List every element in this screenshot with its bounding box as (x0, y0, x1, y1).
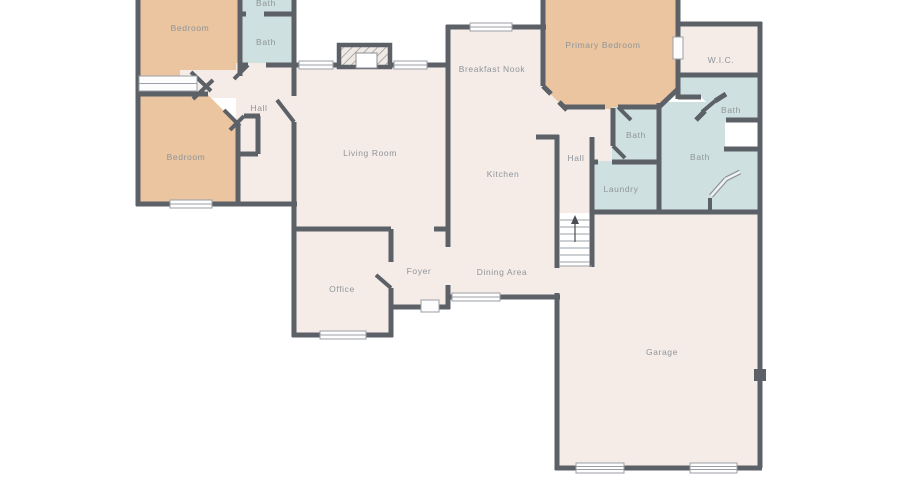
garage-wall-notch (754, 369, 766, 381)
garage-door-right (690, 463, 737, 473)
room-label-breakfast-nook: Breakfast Nook (459, 64, 526, 74)
room-bedroom-bottom (138, 95, 237, 205)
garage-door-left (576, 463, 624, 473)
room-label-wic: W.I.C. (708, 55, 735, 65)
room-label-bath-top: Bath (256, 0, 276, 8)
room-label-bedroom-bottom: Bedroom (167, 152, 206, 162)
room-label-bath-small: Bath (626, 130, 646, 140)
front-door (421, 300, 439, 312)
bath-niche (725, 122, 761, 149)
closet-sliding-door (139, 76, 197, 91)
window-office (320, 331, 366, 339)
fireplace (339, 45, 390, 68)
window-breakfast-nook (470, 23, 512, 31)
window-living-right (394, 61, 427, 69)
room-label-foyer: Foyer (407, 266, 432, 276)
room-label-bath-primary: Bath (690, 152, 710, 162)
room-primary-bedroom (544, 0, 679, 109)
room-label-primary-bedroom: Primary Bedroom (565, 40, 640, 50)
room-label-hall-left: Hall (250, 103, 267, 113)
window-dining (452, 293, 500, 301)
floor-plan: Bath Bedroom Bath Hall Bedroom Living Ro… (0, 0, 900, 500)
room-label-kitchen: Kitchen (487, 169, 520, 179)
room-label-laundry: Laundry (604, 184, 639, 194)
wic-door (673, 37, 683, 59)
room-wic (677, 25, 761, 74)
room-living (291, 63, 449, 231)
room-label-bath-wic: Bath (721, 105, 741, 115)
room-label-hall-center: Hall (567, 153, 584, 163)
room-label-living-room: Living Room (343, 148, 397, 158)
window-living-left (299, 61, 333, 69)
room-label-bath-upper: Bath (256, 37, 276, 47)
room-label-garage: Garage (646, 347, 678, 357)
floor-plan-page: Bath Bedroom Bath Hall Bedroom Living Ro… (0, 0, 900, 500)
room-label-office: Office (329, 284, 355, 294)
room-office (291, 228, 392, 336)
room-hall-left (236, 63, 297, 205)
window-bedroom-bottom (170, 200, 212, 208)
room-label-dining-area: Dining Area (477, 267, 528, 277)
room-label-bedroom-top: Bedroom (171, 23, 210, 33)
